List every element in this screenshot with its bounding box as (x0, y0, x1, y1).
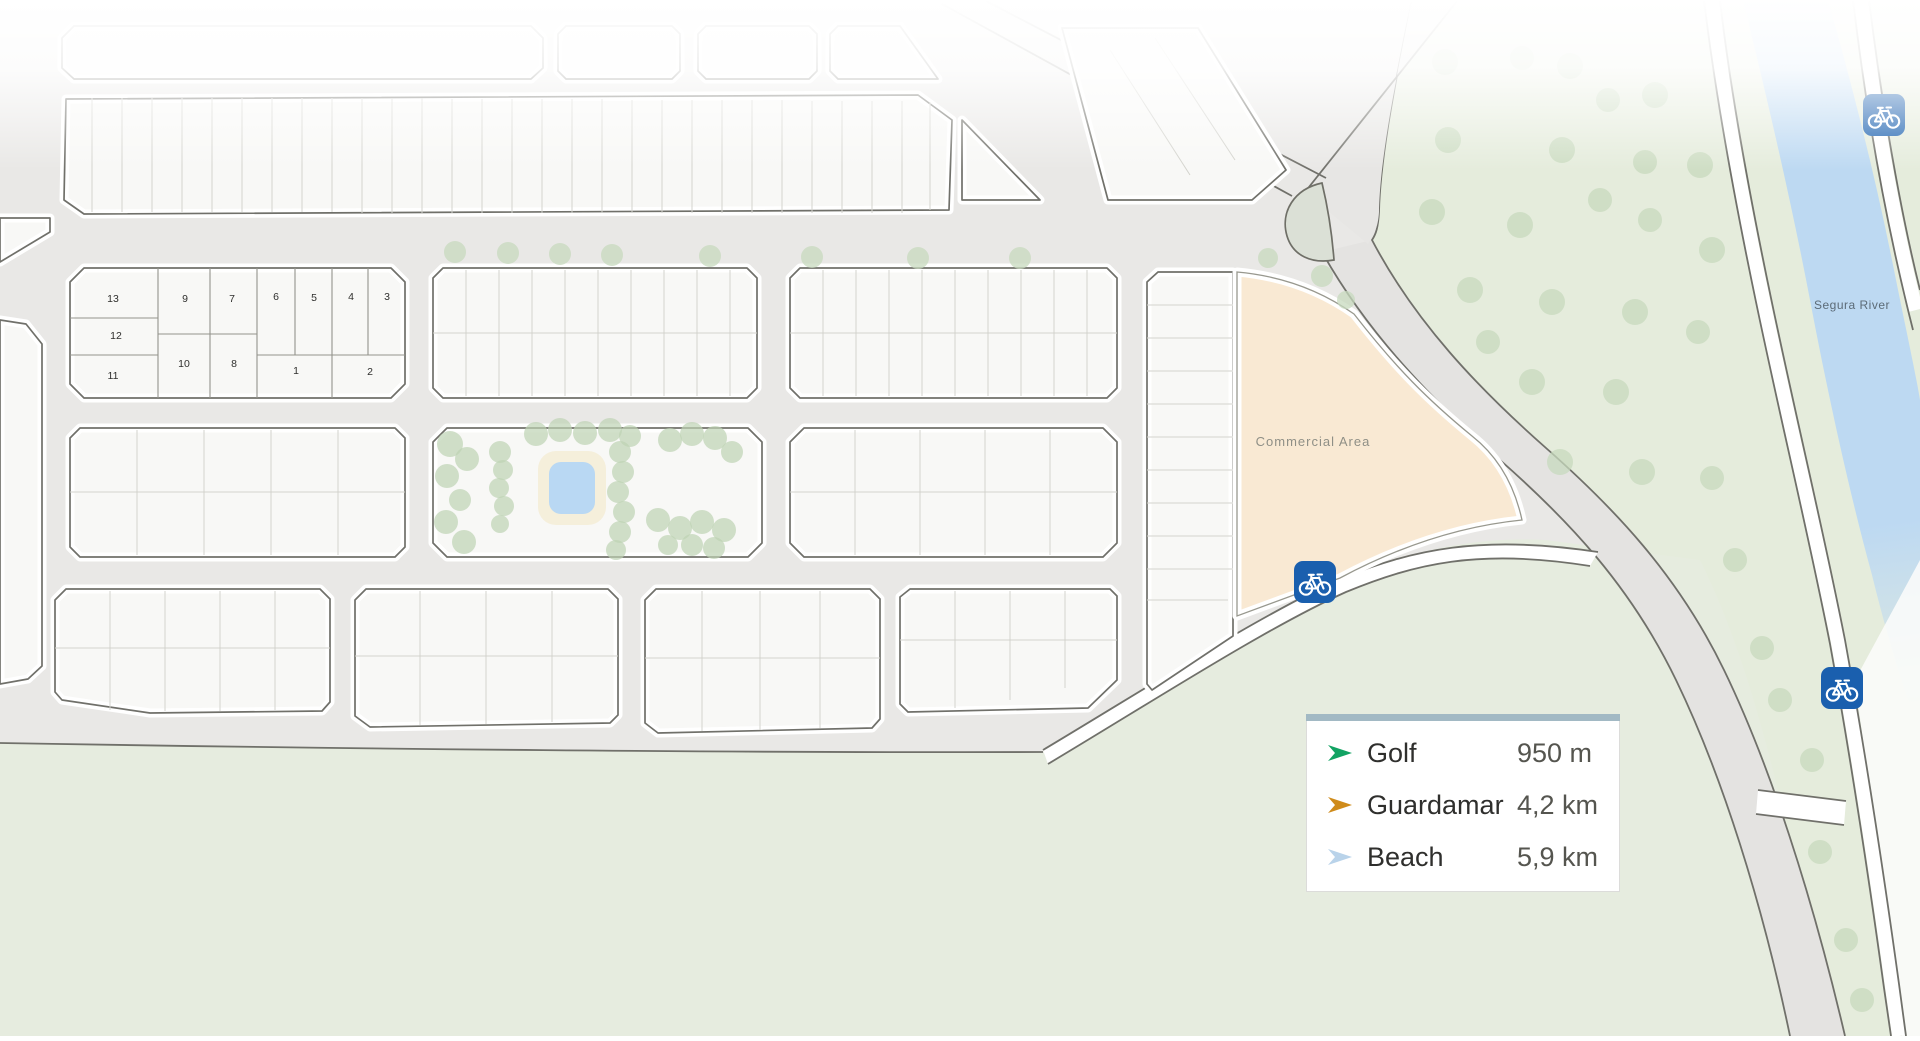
plot-2-label: 2 (367, 366, 373, 378)
legend-row-beach: Beach 5,9 km (1307, 837, 1619, 877)
legend-rows: Golf 950 m Guardamar 4,2 km Beach 5,9 km (1307, 727, 1619, 883)
site-plan-canvas: 13 12 11 9 10 7 8 6 5 4 3 1 2 (0, 0, 1920, 1036)
legend-label-guardamar: Guardamar (1367, 790, 1517, 821)
plot-7-label: 7 (229, 293, 235, 305)
beach-arrow-icon (1327, 848, 1353, 866)
river-label: Segura River (1814, 298, 1890, 312)
park-pond (538, 451, 606, 525)
legend-distance-guardamar: 4,2 km (1517, 790, 1619, 821)
plot-4-label: 4 (348, 291, 354, 303)
site-plan-map: 13 12 11 9 10 7 8 6 5 4 3 1 2 (0, 0, 1920, 1036)
strip-block (1147, 272, 1233, 690)
numbered-plots-block: 13 12 11 9 10 7 8 6 5 4 3 1 2 (70, 268, 405, 398)
legend-label-golf: Golf (1367, 738, 1517, 769)
plot-10-label: 10 (178, 358, 190, 370)
commercial-area-label: Commercial Area (1256, 434, 1371, 449)
plot-1-label: 1 (293, 365, 299, 377)
legend-row-golf: Golf 950 m (1307, 733, 1619, 773)
distances-legend: Golf 950 m Guardamar 4,2 km Beach 5,9 km (1306, 714, 1620, 892)
legend-label-beach: Beach (1367, 842, 1517, 873)
bike-route-icon (1821, 667, 1863, 709)
plot-9-label: 9 (182, 293, 188, 305)
legend-row-guardamar: Guardamar 4,2 km (1307, 785, 1619, 825)
plot-13-label: 13 (107, 293, 119, 305)
map-top-fade (0, 0, 1920, 170)
bike-route-icon (1294, 561, 1336, 603)
plot-3-label: 3 (384, 291, 390, 303)
plot-6-label: 6 (273, 291, 279, 303)
legend-distance-beach: 5,9 km (1517, 842, 1619, 873)
legend-header-bar (1306, 714, 1620, 721)
golf-arrow-icon (1327, 744, 1353, 762)
row-c-blocks (55, 589, 1117, 733)
plot-5-label: 5 (311, 292, 317, 304)
plot-8-label: 8 (231, 358, 237, 370)
guardamar-arrow-icon (1327, 796, 1353, 814)
plot-12-label: 12 (110, 330, 122, 342)
legend-distance-golf: 950 m (1517, 738, 1619, 769)
plot-11-label: 11 (108, 370, 119, 382)
park-block (433, 418, 762, 560)
